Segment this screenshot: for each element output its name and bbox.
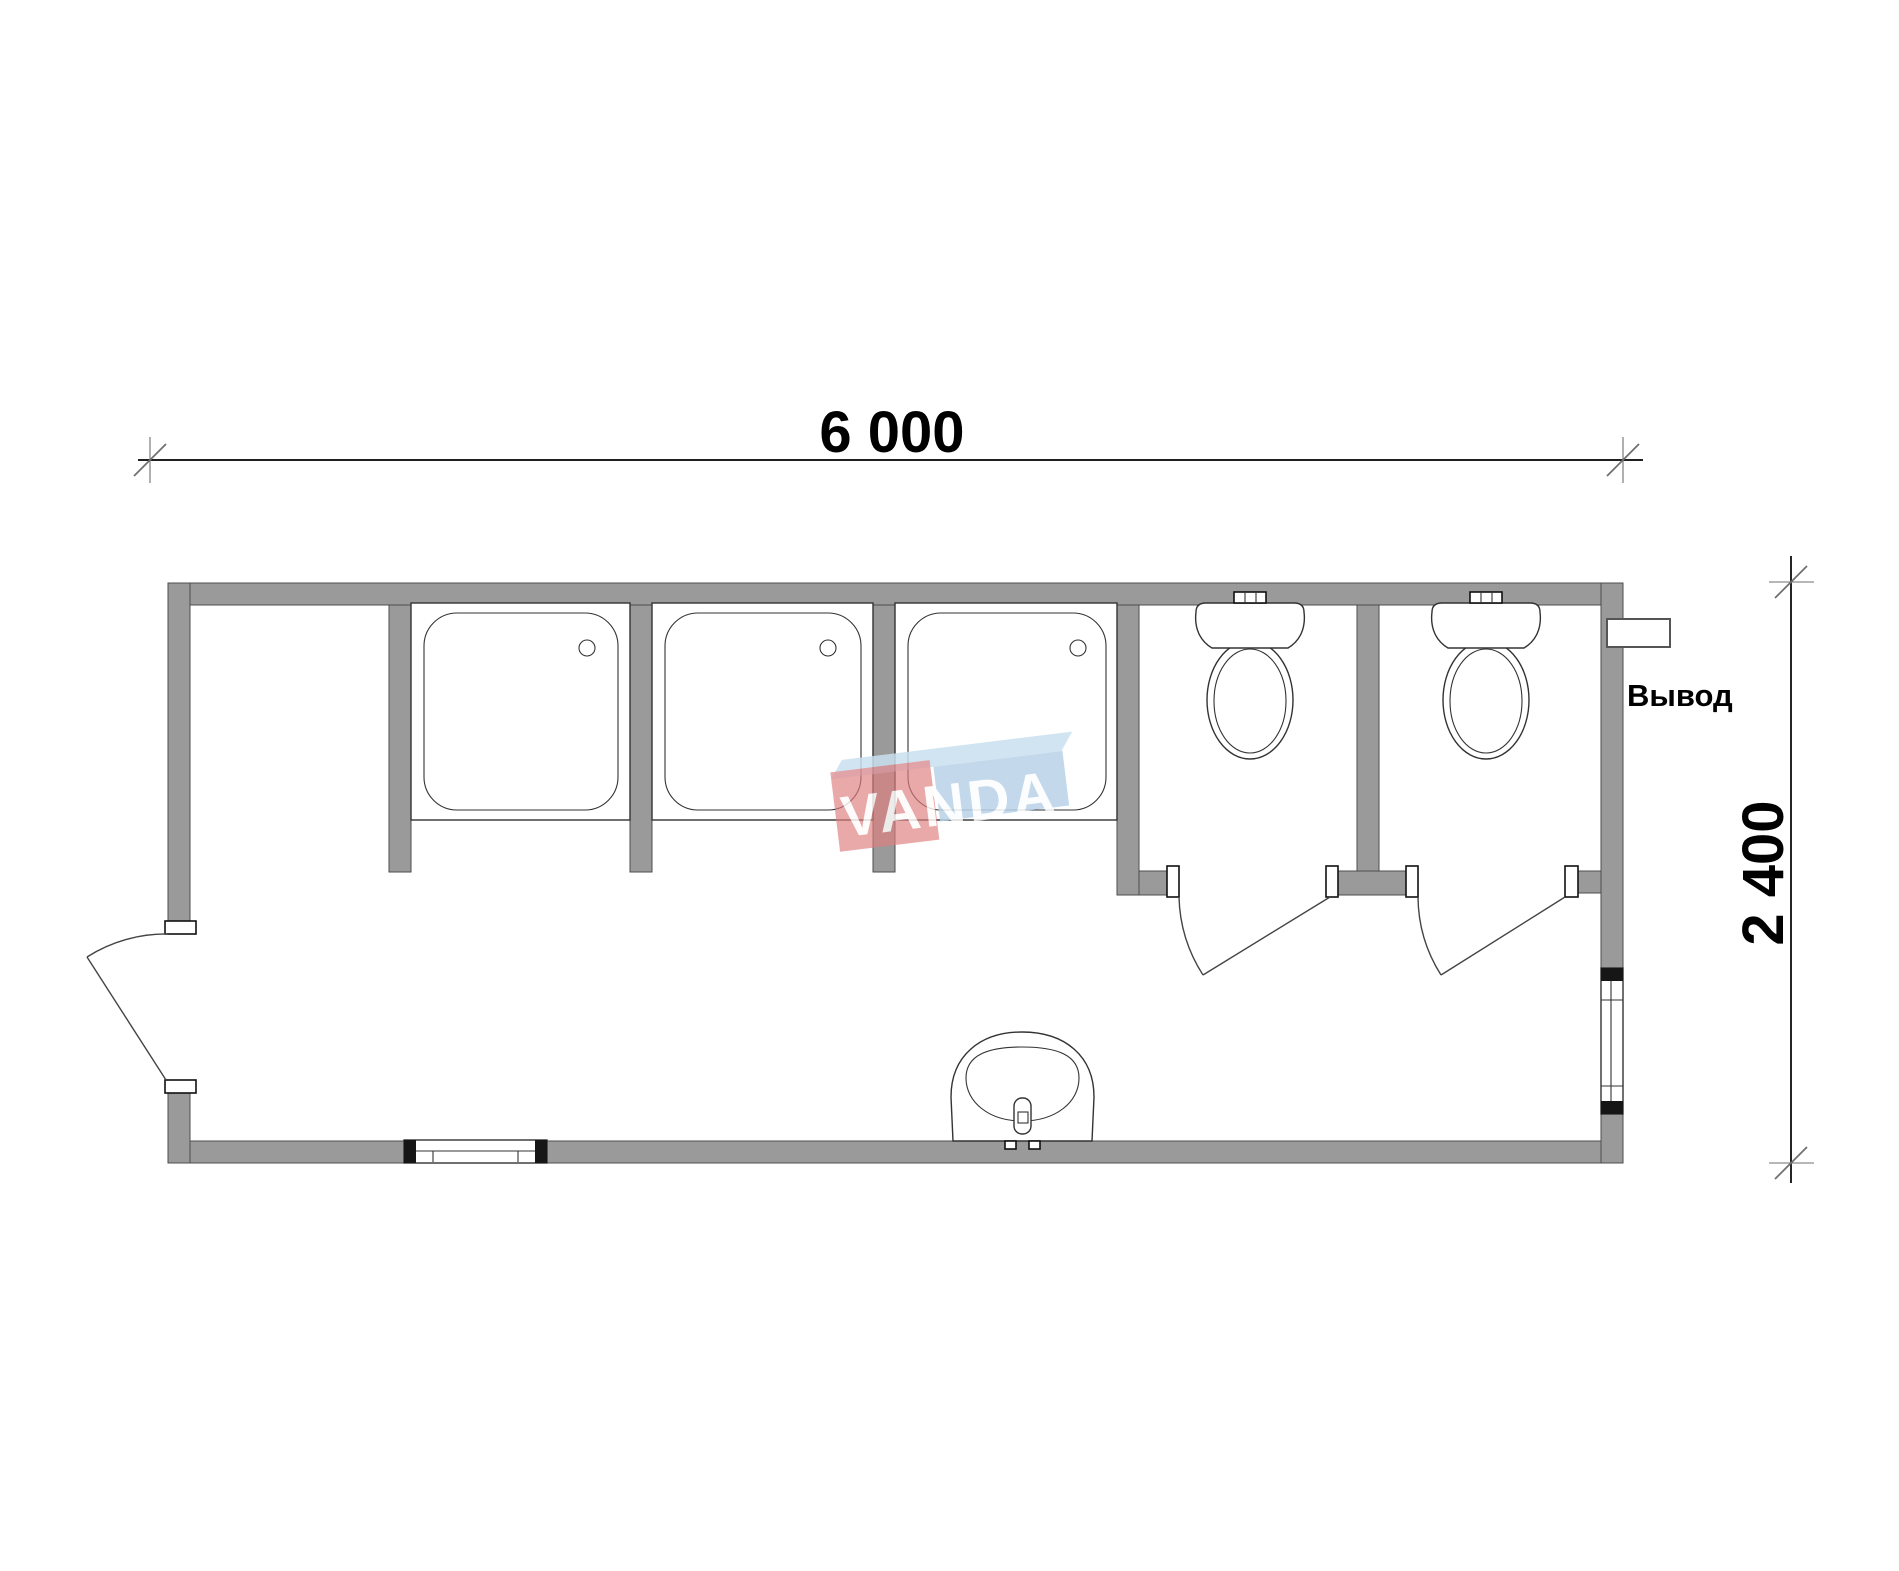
- window-cap: [1601, 1101, 1623, 1114]
- window-cap: [404, 1140, 416, 1163]
- flush-buttons: [1470, 592, 1502, 603]
- dimension-width: 6 000: [134, 400, 1643, 483]
- flush-buttons: [1234, 592, 1266, 603]
- toilet-tank: [1432, 603, 1541, 648]
- wall-bottom: [168, 1141, 1623, 1163]
- partition-shower-2: [630, 605, 652, 872]
- outlet-stub: [1607, 619, 1670, 647]
- partition-wc-1-stub: [1139, 871, 1167, 895]
- partition-shower-1: [389, 605, 411, 872]
- door-jamb: [1326, 866, 1338, 897]
- door-swing-arc: [1179, 897, 1203, 975]
- dimension-height-label: 2 400: [1731, 800, 1796, 945]
- window-right: [1601, 968, 1623, 1114]
- window-frame: [1601, 968, 1623, 1114]
- door-jamb: [165, 921, 196, 934]
- wc-2-door: [1406, 866, 1578, 975]
- door-jamb: [1167, 866, 1179, 897]
- door-swing-arc: [87, 934, 168, 957]
- sink-mount: [1029, 1141, 1040, 1149]
- door-leaf: [1203, 897, 1330, 975]
- wall-left-upper: [168, 583, 190, 921]
- window-cap: [1601, 968, 1623, 981]
- window-bottom: [404, 1140, 547, 1163]
- door-leaf: [87, 957, 166, 1080]
- shower-cabin-1: [411, 603, 630, 820]
- sink: [951, 1032, 1094, 1149]
- wall-right-lower: [1601, 1114, 1623, 1163]
- toilet-tank: [1196, 603, 1305, 648]
- floor-plan-svg: 6 000 2 400: [0, 0, 1899, 1571]
- dimension-width-label: 6 000: [819, 400, 964, 465]
- outlet-label: Вывод: [1627, 678, 1733, 713]
- outlet: Вывод: [1607, 619, 1733, 713]
- partition-wc-2: [1357, 605, 1379, 871]
- toilet-bowl: [1207, 641, 1293, 759]
- wc-1-door: [1167, 866, 1338, 975]
- door-jamb: [1565, 866, 1578, 897]
- sink-mount: [1005, 1141, 1016, 1149]
- door-leaf: [1441, 897, 1565, 975]
- toilet-1: [1196, 592, 1305, 759]
- wall-left-lower: [168, 1093, 190, 1163]
- partition-wc-1: [1117, 605, 1139, 895]
- wc-2-hinge-stub: [1578, 871, 1601, 893]
- door-jamb: [1406, 866, 1418, 897]
- toilet-bowl: [1443, 641, 1529, 759]
- door-jamb: [165, 1080, 196, 1093]
- entry-door: [87, 921, 196, 1093]
- wall-top: [168, 583, 1623, 605]
- partition-wc-2-stub: [1337, 871, 1406, 895]
- toilet-2: [1432, 592, 1541, 759]
- door-swing-arc: [1418, 897, 1441, 975]
- dimension-height: 2 400: [1731, 556, 1814, 1183]
- window-cap: [535, 1140, 547, 1163]
- shower-enclosure: [411, 603, 630, 820]
